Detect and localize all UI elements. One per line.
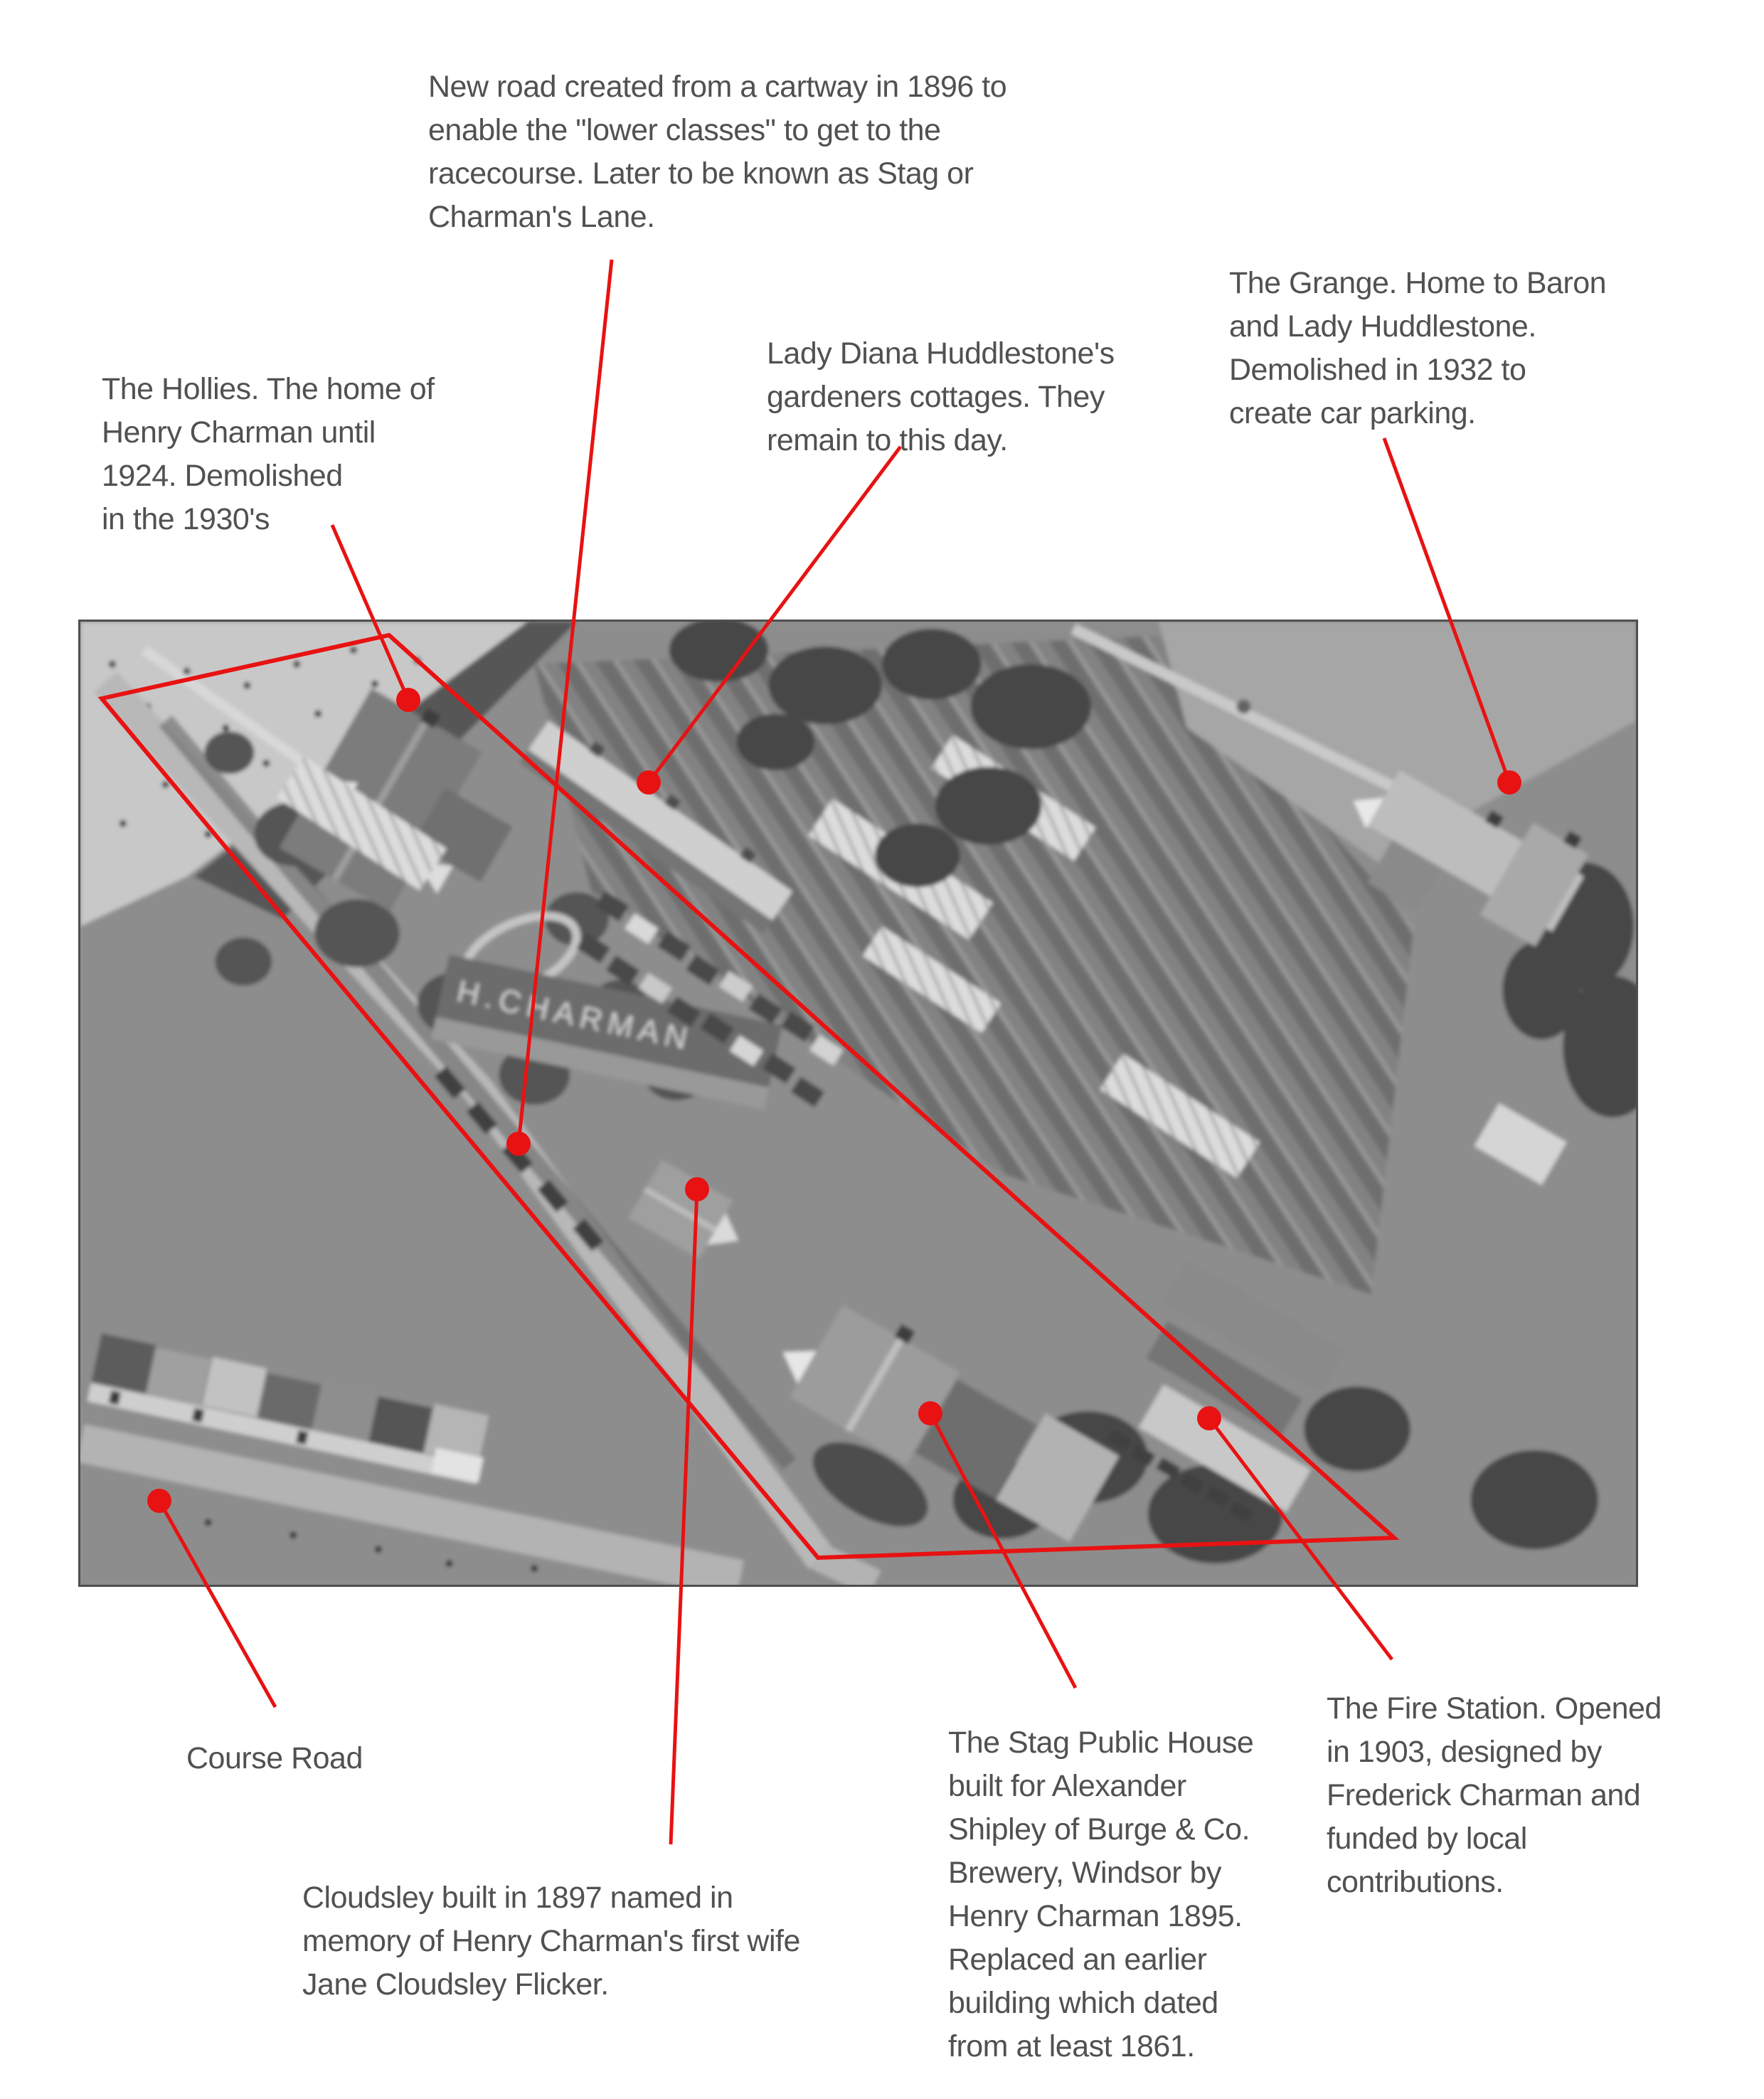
label-course-road: Course Road <box>186 1737 471 1780</box>
label-gardeners-cottages: Lady Diana Huddlestone's gardeners cotta… <box>767 332 1208 462</box>
label-fire-station: The Fire Station. Opened in 1903, design… <box>1327 1687 1739 1904</box>
label-cloudsley: Cloudsley built in 1897 named in memory … <box>302 1876 928 2007</box>
aerial-photo-art: H.CHARMAN <box>80 622 1636 1585</box>
label-hollies: The Hollies. The home of Henry Charman u… <box>102 368 514 541</box>
label-grange: The Grange. Home to Baron and Lady Huddl… <box>1229 262 1684 435</box>
annotated-aerial-photo-page: { "page": {"background": "#ffffff"}, "co… <box>0 0 1764 2099</box>
aerial-photo: H.CHARMAN <box>78 620 1638 1587</box>
label-stag: The Stag Public House built for Alexande… <box>948 1721 1318 2068</box>
label-new-road: New road created from a cartway in 1896 … <box>428 65 1154 239</box>
